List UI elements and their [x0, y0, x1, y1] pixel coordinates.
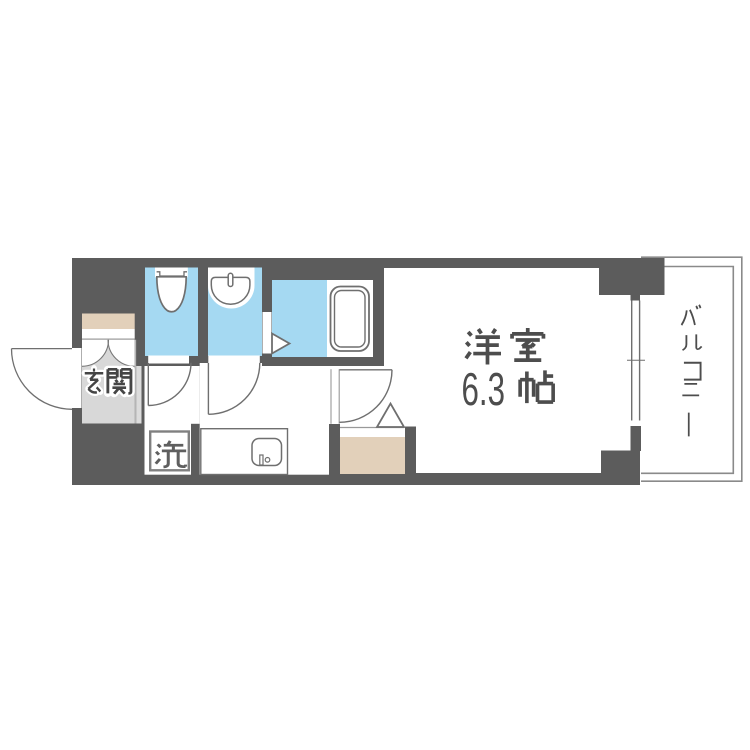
svg-text:6.3: 6.3 [462, 363, 506, 415]
